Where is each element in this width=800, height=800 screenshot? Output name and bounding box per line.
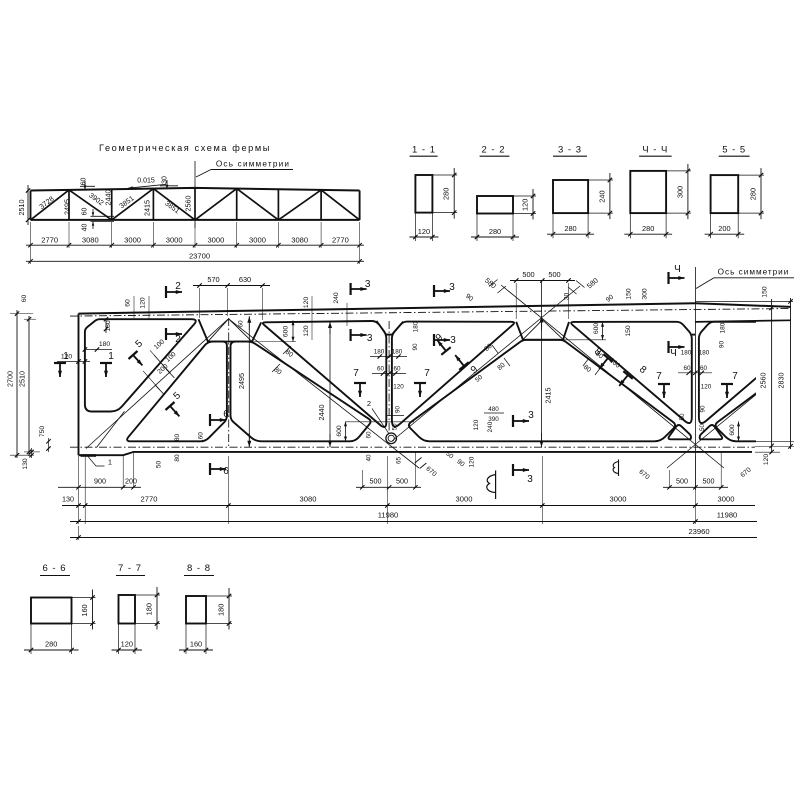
svg-text:90: 90 xyxy=(395,406,402,414)
svg-text:7: 7 xyxy=(656,371,662,382)
svg-text:120: 120 xyxy=(521,199,530,211)
svg-text:120: 120 xyxy=(469,456,476,467)
svg-text:2: 2 xyxy=(175,334,181,345)
svg-text:2700: 2700 xyxy=(6,371,15,387)
svg-text:5: 5 xyxy=(172,390,184,402)
svg-text:500: 500 xyxy=(676,477,688,486)
svg-text:280: 280 xyxy=(442,188,451,200)
svg-text:2560: 2560 xyxy=(184,196,193,212)
svg-text:3000: 3000 xyxy=(207,235,224,244)
svg-text:5: 5 xyxy=(134,338,146,350)
svg-text:80: 80 xyxy=(174,434,181,442)
svg-text:2 - 2: 2 - 2 xyxy=(481,145,505,156)
svg-text:3000: 3000 xyxy=(166,235,183,244)
svg-text:750: 750 xyxy=(39,426,46,438)
svg-text:180: 180 xyxy=(413,321,420,332)
svg-text:670: 670 xyxy=(739,466,752,479)
svg-text:120: 120 xyxy=(393,384,404,391)
svg-text:3: 3 xyxy=(365,279,371,290)
svg-text:9: 9 xyxy=(434,332,446,344)
svg-text:3: 3 xyxy=(449,282,455,293)
svg-text:160: 160 xyxy=(80,604,89,616)
svg-text:280: 280 xyxy=(489,227,501,236)
svg-text:90: 90 xyxy=(605,294,615,304)
svg-text:Ч: Ч xyxy=(670,348,677,359)
svg-text:1 - 1: 1 - 1 xyxy=(412,145,436,156)
svg-text:180: 180 xyxy=(392,349,403,356)
svg-text:60: 60 xyxy=(21,295,28,303)
svg-text:3 - 3: 3 - 3 xyxy=(558,145,582,156)
svg-text:280: 280 xyxy=(642,224,654,233)
svg-text:23960: 23960 xyxy=(688,527,709,536)
svg-text:2770: 2770 xyxy=(41,235,58,244)
svg-text:6: 6 xyxy=(223,409,229,420)
svg-text:100: 100 xyxy=(153,338,166,351)
svg-text:3080: 3080 xyxy=(300,495,317,504)
svg-text:3080: 3080 xyxy=(82,235,99,244)
svg-text:60: 60 xyxy=(377,366,385,373)
svg-text:3000: 3000 xyxy=(124,235,141,244)
svg-text:2830: 2830 xyxy=(777,373,786,389)
svg-text:1: 1 xyxy=(108,458,112,467)
svg-text:180: 180 xyxy=(720,322,727,333)
svg-text:500: 500 xyxy=(548,270,560,279)
svg-text:3: 3 xyxy=(527,474,533,485)
svg-text:600: 600 xyxy=(283,326,290,338)
svg-text:280: 280 xyxy=(564,224,576,233)
svg-text:90: 90 xyxy=(412,343,419,351)
svg-text:Ч: Ч xyxy=(674,264,681,275)
svg-text:7: 7 xyxy=(732,371,738,382)
svg-text:90: 90 xyxy=(455,458,465,468)
svg-text:630: 630 xyxy=(239,275,251,284)
svg-text:65: 65 xyxy=(396,457,403,465)
svg-text:2510: 2510 xyxy=(17,200,26,216)
svg-text:80: 80 xyxy=(496,362,506,372)
svg-text:120: 120 xyxy=(61,354,73,361)
svg-text:120: 120 xyxy=(763,454,770,466)
svg-text:240: 240 xyxy=(333,292,340,304)
svg-text:570: 570 xyxy=(207,275,219,284)
svg-text:2560: 2560 xyxy=(759,373,768,389)
svg-text:500: 500 xyxy=(522,270,534,279)
svg-text:30: 30 xyxy=(564,293,571,301)
svg-text:100: 100 xyxy=(164,351,177,364)
svg-text:40: 40 xyxy=(366,454,373,462)
svg-text:3: 3 xyxy=(367,333,373,344)
svg-text:60: 60 xyxy=(238,320,245,328)
svg-text:240: 240 xyxy=(597,190,606,202)
svg-text:3851: 3851 xyxy=(163,199,181,216)
svg-text:80: 80 xyxy=(483,343,493,353)
svg-text:2: 2 xyxy=(175,281,181,292)
svg-text:580: 580 xyxy=(585,276,600,291)
svg-text:50: 50 xyxy=(699,424,706,432)
svg-text:2770: 2770 xyxy=(141,495,158,504)
svg-text:50: 50 xyxy=(156,461,163,469)
svg-text:80: 80 xyxy=(174,454,181,462)
svg-text:200: 200 xyxy=(718,224,730,233)
svg-text:300: 300 xyxy=(675,186,684,198)
svg-text:2495: 2495 xyxy=(63,199,72,215)
svg-text:200: 200 xyxy=(125,477,137,486)
svg-text:150: 150 xyxy=(762,286,769,298)
svg-text:300: 300 xyxy=(642,288,649,300)
svg-text:500: 500 xyxy=(396,477,408,486)
svg-text:3: 3 xyxy=(528,410,534,421)
svg-text:160: 160 xyxy=(190,640,202,649)
svg-text:Ч - Ч: Ч - Ч xyxy=(642,145,668,156)
svg-text:Геометрическая схема фермы: Геометрическая схема фермы xyxy=(99,143,271,153)
svg-text:90: 90 xyxy=(464,293,474,303)
svg-text:160: 160 xyxy=(198,432,205,443)
svg-text:180: 180 xyxy=(217,604,226,616)
svg-text:11980: 11980 xyxy=(717,511,738,520)
svg-text:120: 120 xyxy=(701,384,712,391)
svg-text:2770: 2770 xyxy=(332,235,349,244)
svg-text:120: 120 xyxy=(303,297,310,309)
svg-text:580: 580 xyxy=(483,276,498,291)
svg-text:40: 40 xyxy=(82,224,89,232)
svg-text:390: 390 xyxy=(488,416,499,423)
svg-text:120: 120 xyxy=(121,640,133,649)
svg-text:180: 180 xyxy=(99,341,111,348)
svg-text:120: 120 xyxy=(140,297,147,309)
svg-text:670: 670 xyxy=(637,469,650,482)
svg-text:500: 500 xyxy=(703,477,715,486)
svg-text:Ось симметрии: Ось симметрии xyxy=(216,160,290,169)
svg-text:60: 60 xyxy=(366,431,373,439)
svg-text:23700: 23700 xyxy=(189,251,210,260)
svg-text:3000: 3000 xyxy=(718,495,735,504)
svg-text:500: 500 xyxy=(370,477,382,486)
svg-text:480: 480 xyxy=(488,406,499,413)
svg-text:120: 120 xyxy=(418,227,430,236)
svg-text:3000: 3000 xyxy=(456,495,473,504)
svg-text:7: 7 xyxy=(424,368,430,379)
svg-text:0.015: 0.015 xyxy=(137,178,155,185)
svg-text:5 - 5: 5 - 5 xyxy=(722,145,746,156)
svg-text:2440: 2440 xyxy=(317,405,326,421)
svg-text:6 - 6: 6 - 6 xyxy=(42,563,66,574)
svg-text:7: 7 xyxy=(353,368,359,379)
svg-text:2415: 2415 xyxy=(544,388,553,404)
svg-text:60: 60 xyxy=(81,178,88,186)
svg-text:120: 120 xyxy=(473,419,480,430)
svg-text:280: 280 xyxy=(749,188,758,200)
svg-text:900: 900 xyxy=(94,477,106,486)
svg-text:670: 670 xyxy=(424,466,437,479)
svg-text:150: 150 xyxy=(626,288,633,300)
svg-text:180: 180 xyxy=(145,603,154,615)
svg-text:90: 90 xyxy=(700,405,707,413)
svg-text:8 - 8: 8 - 8 xyxy=(187,563,211,574)
svg-text:60: 60 xyxy=(125,299,132,307)
svg-text:3: 3 xyxy=(450,335,456,346)
svg-text:2510: 2510 xyxy=(18,371,27,387)
svg-text:80: 80 xyxy=(272,366,282,376)
svg-text:50: 50 xyxy=(679,413,686,421)
svg-text:180: 180 xyxy=(374,349,385,356)
svg-text:11980: 11980 xyxy=(378,511,399,520)
svg-text:60: 60 xyxy=(82,208,89,216)
svg-text:600: 600 xyxy=(593,323,600,335)
svg-text:50: 50 xyxy=(392,423,399,431)
svg-text:7 - 7: 7 - 7 xyxy=(118,563,142,574)
svg-text:3080: 3080 xyxy=(291,235,308,244)
svg-text:130: 130 xyxy=(22,458,29,470)
svg-text:3000: 3000 xyxy=(249,235,266,244)
svg-text:120: 120 xyxy=(303,325,310,337)
svg-text:2: 2 xyxy=(367,399,371,408)
svg-text:1: 1 xyxy=(108,351,114,362)
svg-text:160: 160 xyxy=(608,357,621,370)
svg-text:600: 600 xyxy=(336,425,343,437)
svg-text:180: 180 xyxy=(681,350,692,357)
svg-text:90: 90 xyxy=(719,341,726,349)
svg-text:280: 280 xyxy=(45,640,57,649)
svg-text:2440: 2440 xyxy=(104,190,113,206)
svg-text:130: 130 xyxy=(62,495,74,504)
svg-text:Ось симметрии: Ось симметрии xyxy=(718,268,790,277)
svg-text:8: 8 xyxy=(637,364,649,376)
svg-text:150: 150 xyxy=(625,325,632,337)
svg-text:2415: 2415 xyxy=(143,200,152,216)
svg-text:3000: 3000 xyxy=(610,495,627,504)
svg-text:180: 180 xyxy=(699,350,710,357)
svg-text:600: 600 xyxy=(729,424,736,436)
svg-text:2495: 2495 xyxy=(237,373,246,389)
